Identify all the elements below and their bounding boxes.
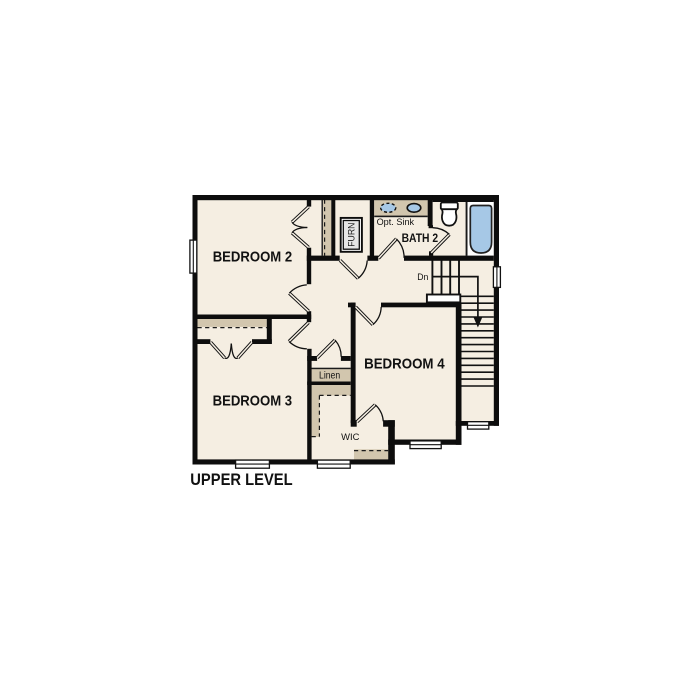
svg-text:BEDROOM 4: BEDROOM 4 [364,356,445,372]
svg-text:Linen: Linen [319,370,340,381]
svg-text:Dn: Dn [417,272,428,283]
svg-text:BATH 2: BATH 2 [402,231,439,245]
svg-text:Opt. Sink: Opt. Sink [377,217,415,227]
svg-text:BEDROOM 3: BEDROOM 3 [213,394,293,410]
svg-text:UPPER LEVEL: UPPER LEVEL [190,471,292,489]
svg-text:BEDROOM 2: BEDROOM 2 [213,249,293,265]
svg-text:WIC: WIC [341,432,359,443]
svg-text:FURN: FURN [347,223,358,247]
